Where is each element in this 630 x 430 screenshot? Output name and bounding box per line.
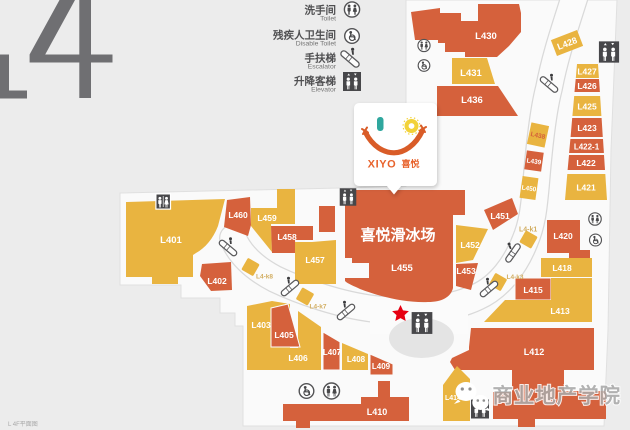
svg-text:L426: L426 (577, 81, 597, 91)
svg-text:L425: L425 (577, 102, 597, 112)
svg-text:L409: L409 (372, 362, 391, 371)
svg-text:喜悦: 喜悦 (401, 158, 419, 169)
svg-text:L4-k1: L4-k1 (519, 227, 537, 234)
svg-text:喜悦滑冰场: 喜悦滑冰场 (360, 226, 435, 244)
svg-text:L452: L452 (460, 240, 480, 250)
svg-text:L423: L423 (577, 123, 597, 133)
svg-text:商业地产学院: 商业地产学院 (493, 384, 621, 408)
svg-text:L401: L401 (160, 235, 182, 246)
svg-text:L420: L420 (553, 231, 573, 241)
svg-text:Elevator: Elevator (311, 87, 337, 94)
svg-text:L453: L453 (456, 266, 476, 276)
svg-text:L457: L457 (305, 255, 325, 265)
svg-text:L455: L455 (391, 263, 413, 274)
svg-text:L406: L406 (288, 353, 308, 363)
svg-text:L 4F平面图: L 4F平面图 (8, 421, 38, 428)
svg-text:Escalator: Escalator (308, 64, 337, 71)
svg-text:L427: L427 (577, 67, 597, 77)
svg-text:L460: L460 (228, 210, 248, 220)
svg-text:L4-k3: L4-k3 (507, 274, 524, 281)
svg-text:L402: L402 (207, 276, 227, 286)
svg-text:L405: L405 (274, 330, 294, 340)
svg-text:L459: L459 (257, 213, 277, 223)
svg-text:L4-k7: L4-k7 (310, 304, 327, 311)
svg-text:L431: L431 (460, 68, 482, 79)
svg-text:L410: L410 (367, 407, 388, 417)
svg-text:L458: L458 (277, 232, 297, 242)
svg-text:L436: L436 (461, 95, 483, 106)
svg-text:L422-1: L422-1 (574, 143, 600, 152)
svg-text:Toilet: Toilet (320, 16, 336, 23)
svg-text:L415: L415 (523, 285, 543, 295)
svg-text:L421: L421 (576, 183, 596, 193)
svg-text:XIYO: XIYO (368, 159, 397, 171)
svg-text:L418: L418 (552, 263, 572, 273)
svg-text:L412: L412 (524, 347, 545, 357)
svg-text:L413: L413 (550, 306, 570, 316)
svg-text:L4-k8: L4-k8 (256, 274, 273, 281)
svg-text:L408: L408 (347, 355, 366, 364)
svg-text:L451: L451 (490, 211, 510, 221)
svg-text:L430: L430 (475, 31, 497, 42)
svg-text:L422: L422 (576, 158, 596, 168)
svg-text:L403: L403 (251, 320, 271, 330)
svg-text:L407: L407 (323, 348, 342, 357)
svg-text:Disable Toilet: Disable Toilet (296, 41, 336, 48)
